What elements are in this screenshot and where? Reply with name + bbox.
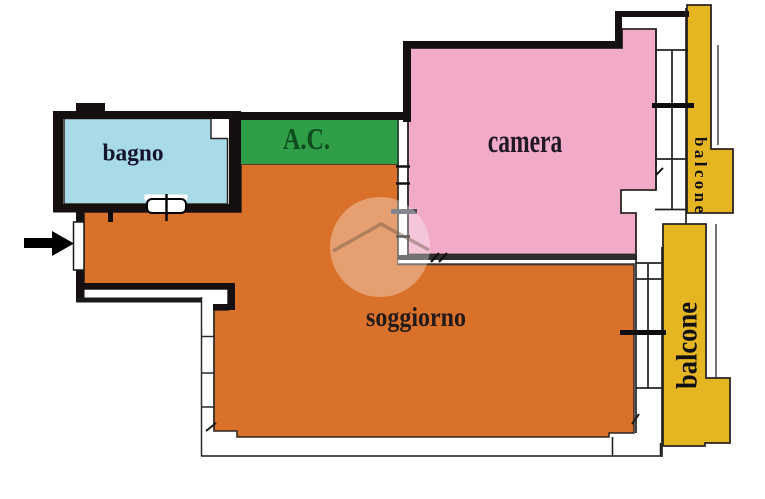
svg-text:camera: camera xyxy=(488,124,563,160)
svg-text:balcone: balcone xyxy=(671,302,704,389)
svg-text:bagno: bagno xyxy=(103,140,164,166)
svg-text:soggiorno: soggiorno xyxy=(366,302,466,332)
svg-text:A.C.: A.C. xyxy=(283,121,330,156)
